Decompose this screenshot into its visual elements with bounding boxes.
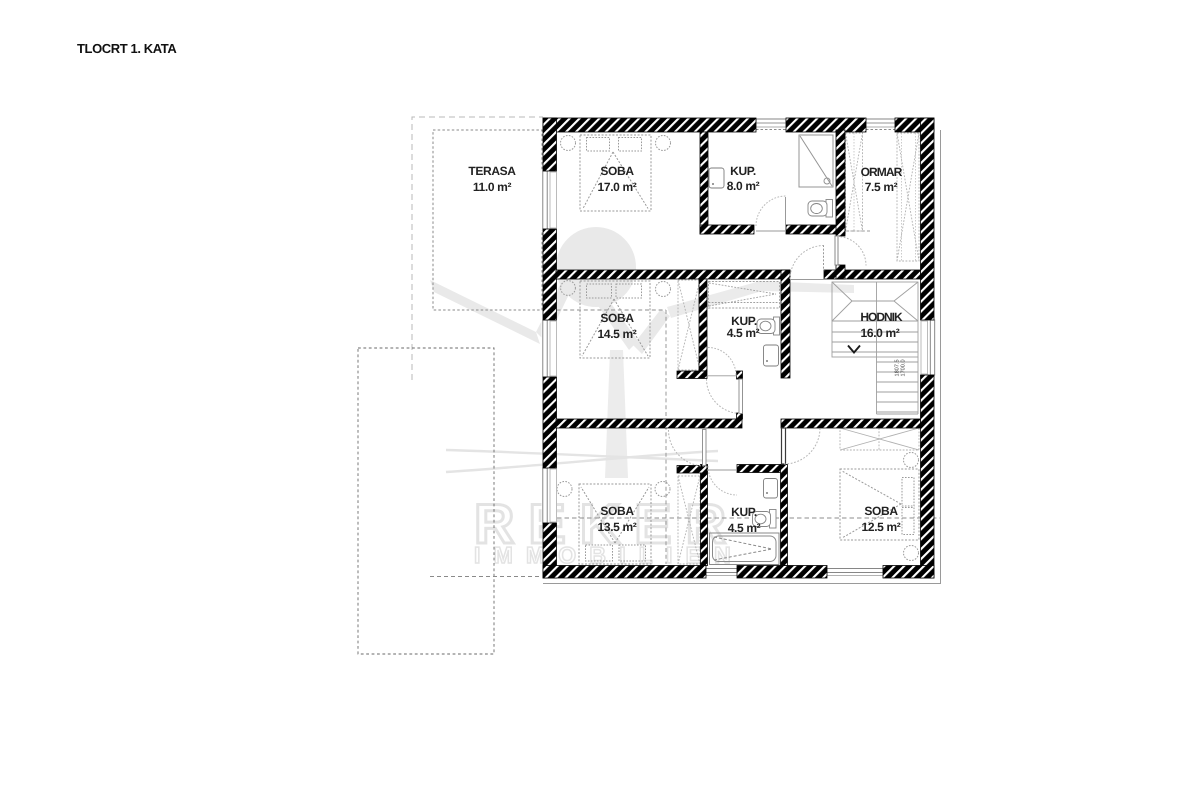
svg-text:HODNIK: HODNIK [860,310,903,324]
svg-text:13.5 m²: 13.5 m² [598,520,637,534]
svg-text:KUP.: KUP. [730,164,756,178]
svg-text:KUP.: KUP. [731,505,757,519]
svg-text:11.0 m²: 11.0 m² [473,180,512,194]
svg-text:1700.0: 1700.0 [901,359,907,376]
svg-text:SOBA: SOBA [600,504,634,518]
svg-text:12.5 m²: 12.5 m² [862,520,901,534]
svg-text:TERASA: TERASA [468,164,516,178]
svg-text:TLOCRT 1. KATA: TLOCRT 1. KATA [77,41,177,56]
svg-text:SOBA: SOBA [600,311,634,325]
svg-text:4.5 m²: 4.5 m² [728,521,761,535]
svg-text:SOBA: SOBA [864,504,898,518]
svg-text:17.0 m²: 17.0 m² [598,180,637,194]
svg-text:16.0 m²: 16.0 m² [861,326,900,340]
svg-text:4.5 m²: 4.5 m² [727,326,760,340]
svg-text:7.5 m²: 7.5 m² [865,180,898,194]
svg-text:8.0 m²: 8.0 m² [727,179,760,193]
svg-text:ORMAR: ORMAR [861,165,903,179]
svg-text:SOBA: SOBA [600,164,634,178]
svg-text:14.5 m²: 14.5 m² [598,327,637,341]
